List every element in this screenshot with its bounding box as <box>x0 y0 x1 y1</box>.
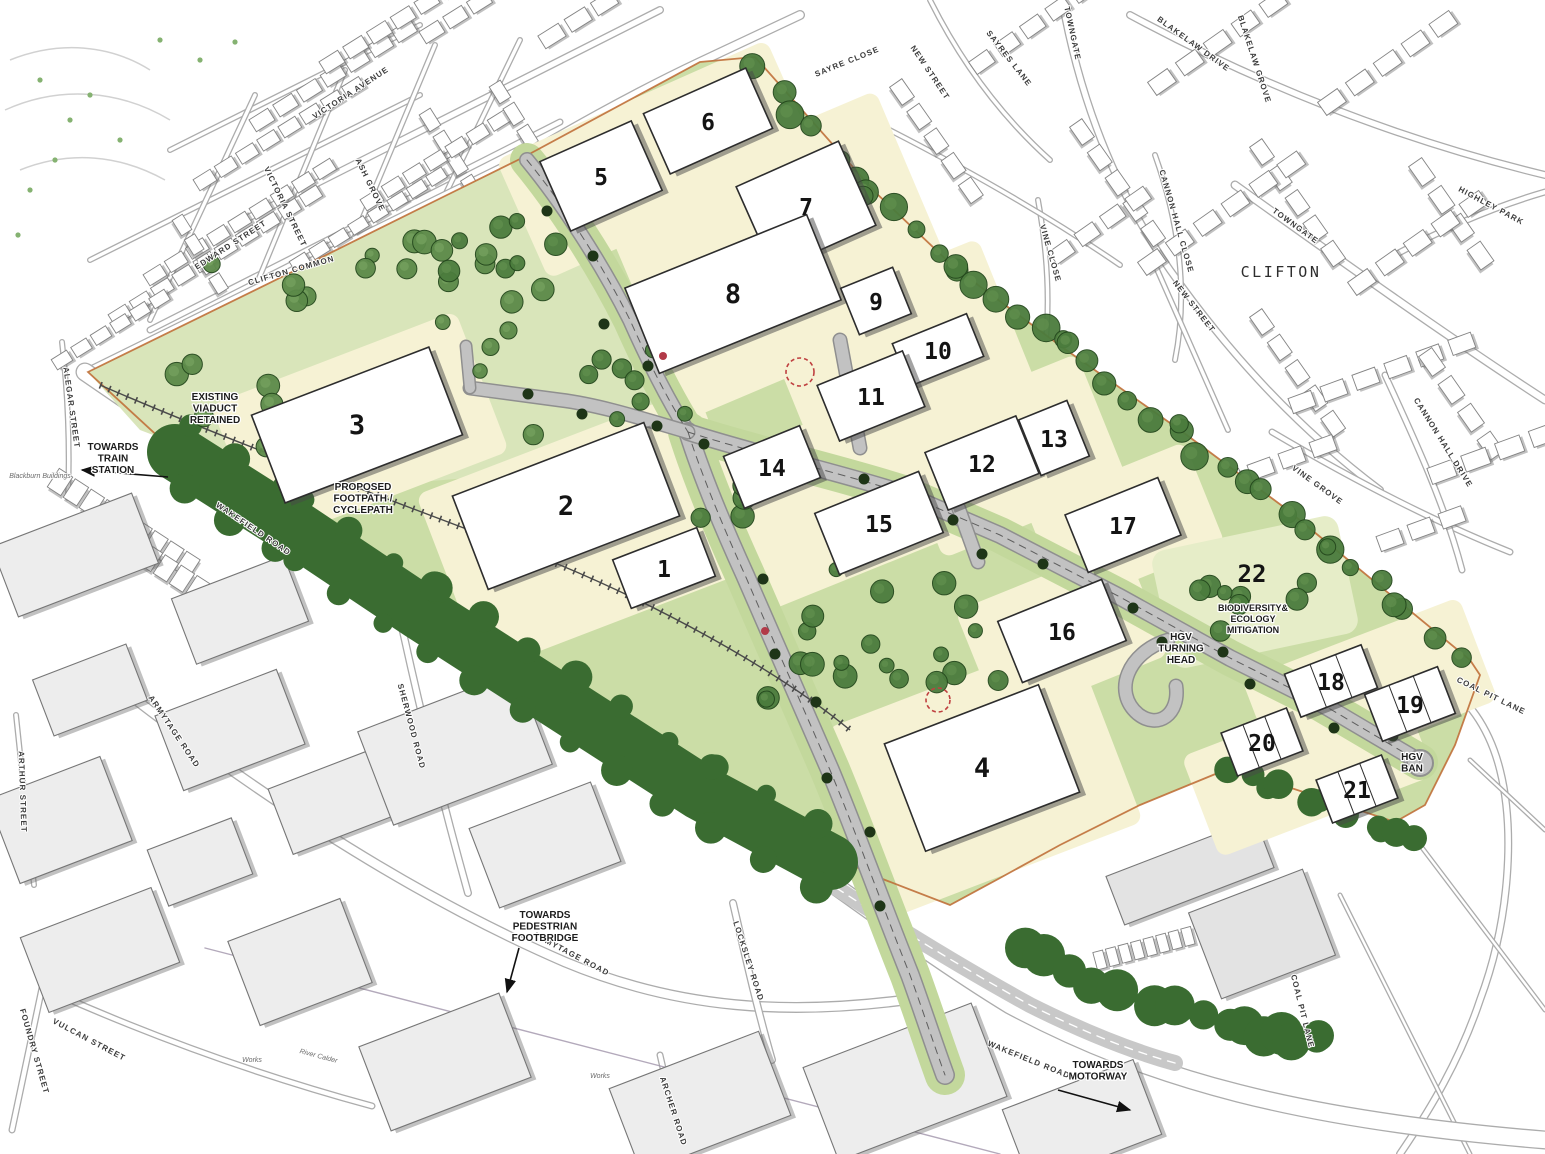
street-label: VULCAN STREET <box>51 1017 127 1063</box>
plot-number-21: 21 <box>1343 778 1371 804</box>
plot-number-10: 10 <box>924 339 952 365</box>
plot-number-16: 16 <box>1048 620 1076 646</box>
annotation-towards-pedestrian-footbridge: TOWARDSPEDESTRIANFOOTBRIDGE <box>512 910 579 944</box>
plot-number-13: 13 <box>1040 427 1068 453</box>
plot-number-15: 15 <box>865 512 893 538</box>
plot-number-11: 11 <box>857 385 885 411</box>
plot-number-6: 6 <box>701 110 715 136</box>
street-label: SAYRE CLOSE <box>814 45 881 79</box>
annotation-hgv-ban: HGVBAN <box>1401 752 1423 775</box>
plot-number-19: 19 <box>1396 693 1424 719</box>
place-label-clifton: CLIFTON <box>1241 263 1322 281</box>
minor-label: Works <box>590 1073 610 1080</box>
annotation-towards-train-station: TOWARDSTRAINSTATION <box>88 442 139 476</box>
plot-number-7: 7 <box>799 195 813 221</box>
plot-number-18: 18 <box>1317 670 1345 696</box>
street-label: NEW STREET <box>909 44 952 102</box>
plot-number-22: 22 <box>1238 560 1267 588</box>
plot-number-3: 3 <box>349 410 365 441</box>
plot-number-14: 14 <box>758 456 786 482</box>
site-masterplan-page: VICTORIA AVENUEVICTORIA STREETASH GROVEE… <box>0 0 1545 1154</box>
annotation-proposed-footpath-cyclepath: PROPOSEDFOOTPATH /CYCLEPATH <box>333 482 393 516</box>
minor-label: River Calder <box>299 1048 339 1065</box>
plot-number-5: 5 <box>594 165 608 191</box>
street-label: LOCKSLEY ROAD <box>731 920 765 1002</box>
plot-number-1: 1 <box>657 557 671 583</box>
red-dot <box>659 352 667 360</box>
plot-number-2: 2 <box>558 491 574 522</box>
plot-number-12: 12 <box>968 452 996 478</box>
plot-number-4: 4 <box>974 753 990 784</box>
plot-number-8: 8 <box>725 279 741 310</box>
plot-number-9: 9 <box>869 290 883 316</box>
red-dot <box>761 627 769 635</box>
annotation-existing-viaduct: EXISTINGVIADUCTRETAINED <box>190 392 240 426</box>
place-labels: CLIFTON <box>1241 263 1322 281</box>
plot-number-20: 20 <box>1248 731 1276 757</box>
minor-label: Blackburn Buildings <box>9 473 71 480</box>
site-masterplan-map: VICTORIA AVENUEVICTORIA STREETASH GROVEE… <box>0 0 1545 1154</box>
minor-label: Works <box>242 1057 262 1064</box>
plot-number-17: 17 <box>1109 514 1137 540</box>
footbridge-arrow <box>507 948 519 992</box>
annotation-towards-motorway: TOWARDSMOTORWAY <box>1069 1060 1128 1083</box>
